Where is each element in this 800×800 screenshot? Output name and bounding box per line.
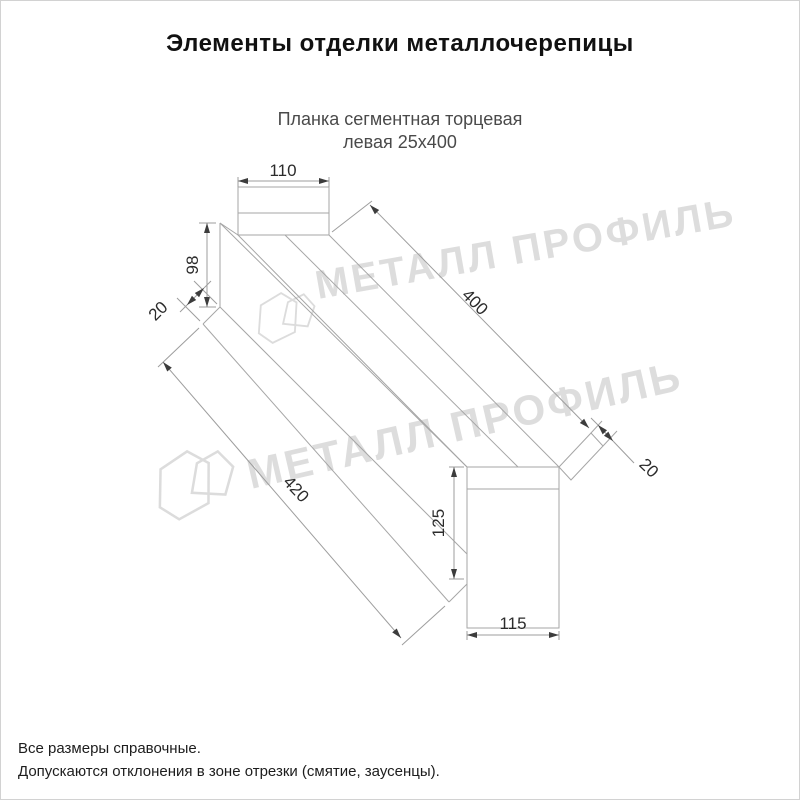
dim-label-110: 110 [269,161,296,180]
dim-left-flange: 20 [145,281,217,325]
left-flange-end-edge [203,307,220,324]
dim-label-98: 98 [183,256,202,275]
dim-label-125: 125 [429,509,448,537]
dim-label-20-right: 20 [635,455,662,482]
metal-profil-logo-icon [149,442,242,523]
body-edge-lower-left [203,324,449,602]
footnote-2: Допускаются отклонения в зоне отрезки (с… [18,760,440,783]
right-end-segment [559,433,603,480]
dim-length-bottom: 420 [158,328,445,645]
top-end-edge [220,223,238,235]
watermark-upper: МЕТАЛЛ ПРОФИЛЬ [253,191,740,345]
dim-label-400: 400 [458,285,491,318]
drawing-sheet: Элементы отделки металлочерепицы Планка … [0,0,800,800]
footnotes: Все размеры справочные. Допускаются откл… [18,737,440,783]
watermark-lower: МЕТАЛЛ ПРОФИЛЬ [149,352,687,523]
footnote-1: Все размеры справочные. [18,737,440,760]
technical-drawing: МЕТАЛЛ ПРОФИЛЬ МЕТАЛЛ ПРОФИЛЬ [1,1,800,800]
bottom-end-face [467,467,559,628]
dim-left-height: 98 [183,223,216,307]
dim-top-width: 110 [238,161,329,187]
dim-bottom-height: 125 [429,467,464,579]
dim-right-flange: 20 [591,418,662,481]
dim-label-20-left: 20 [145,298,172,325]
dim-bottom-width: 115 [467,614,559,640]
bottom-tip-cut-edge [449,584,467,602]
watermark-text: МЕТАЛЛ ПРОФИЛЬ [242,352,687,498]
watermark-text: МЕТАЛЛ ПРОФИЛЬ [312,191,739,308]
metal-profil-logo-icon [253,288,320,345]
top-end-face [238,187,329,235]
dim-label-115: 115 [499,614,526,633]
